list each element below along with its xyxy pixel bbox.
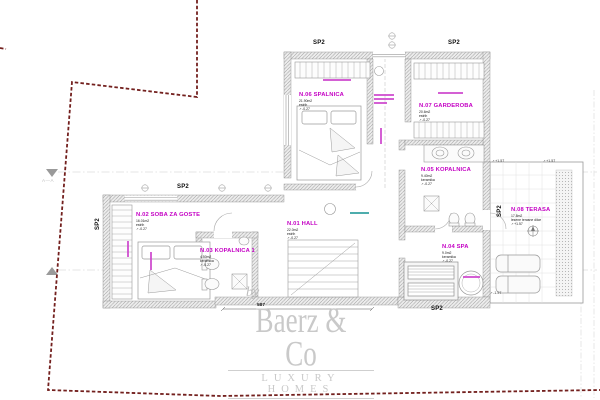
section-arrow-icon — [46, 267, 58, 275]
section-marker-label: A—A — [42, 178, 54, 183]
axis-label-sp2: SP2 — [431, 306, 443, 312]
brand-by-script: by — [246, 285, 259, 301]
room-label-kopalnica: N.05 KOPALNICA 9.40m2 keramika ↗-0.27 — [421, 167, 471, 186]
brand-name: Baerz & Co — [240, 305, 363, 372]
axis-label-sp2: SP2 — [497, 205, 503, 217]
annotation-mark — [350, 212, 369, 214]
brand-rule — [228, 398, 374, 399]
spa-tub — [459, 271, 483, 295]
axis-label-sp2: SP2 — [177, 184, 189, 190]
floor-plan-canvas: SP2 SP2 SP2 SP2 SP2 SP2 A—A 587 N.06 SPA… — [0, 0, 600, 400]
annotation-mark — [323, 79, 351, 81]
room-label-terasa: N.08 TERASA 17.8m2 lesene terasne dilce … — [511, 207, 550, 226]
annotation-mark — [380, 128, 382, 144]
room-label-garderoba: N.07 GARDEROBA 20.6m2 estrih ↗-0.27 — [419, 103, 473, 122]
brand-watermark: by Baerz & Co LUXURY HOMES — [226, 283, 376, 399]
axis-label-sp2: SP2 — [313, 40, 325, 46]
level-mark: ↗+1.57 — [492, 159, 504, 163]
annotation-mark — [463, 276, 480, 278]
axis-label-sp2: SP2 — [448, 40, 460, 46]
section-arrow-icon — [46, 169, 58, 177]
brand-tagline: LUXURY HOMES — [226, 373, 376, 395]
room-label-hall: N.01 HALL 22.0m2 estrih ↗-0.27 — [287, 221, 318, 240]
room-label-spa: N.04 SPA 9.0m2 keramika ↗-0.27 — [442, 244, 469, 263]
annotation-mark — [127, 241, 129, 257]
level-mark: ↗+1.57 — [543, 159, 555, 163]
annotation-mark — [150, 252, 152, 270]
sauna — [404, 262, 458, 300]
room-label-soba-za-goste: N.02 SOBA ZA GOSTE 16.01m2 estrih ↗-0.27 — [136, 212, 200, 231]
annotation-mark — [374, 94, 394, 96]
bed-main — [297, 106, 361, 180]
room-label-kopalnica-1: N.03 KOPALNICA 1 4.50m2 keramika ↗-0.27 — [200, 248, 255, 267]
annotation-mark — [374, 102, 387, 104]
annotation-mark — [374, 98, 394, 100]
annotation-mark — [438, 92, 463, 94]
level-mark: ↗-1.57 — [490, 291, 501, 295]
room-label-spalnica: N.06 SPALNICA 21.90m2 estrih ↗-0.27 — [299, 92, 344, 111]
axis-label-sp2: SP2 — [95, 218, 101, 230]
terrace — [490, 162, 583, 303]
gravel-strip — [556, 170, 572, 296]
